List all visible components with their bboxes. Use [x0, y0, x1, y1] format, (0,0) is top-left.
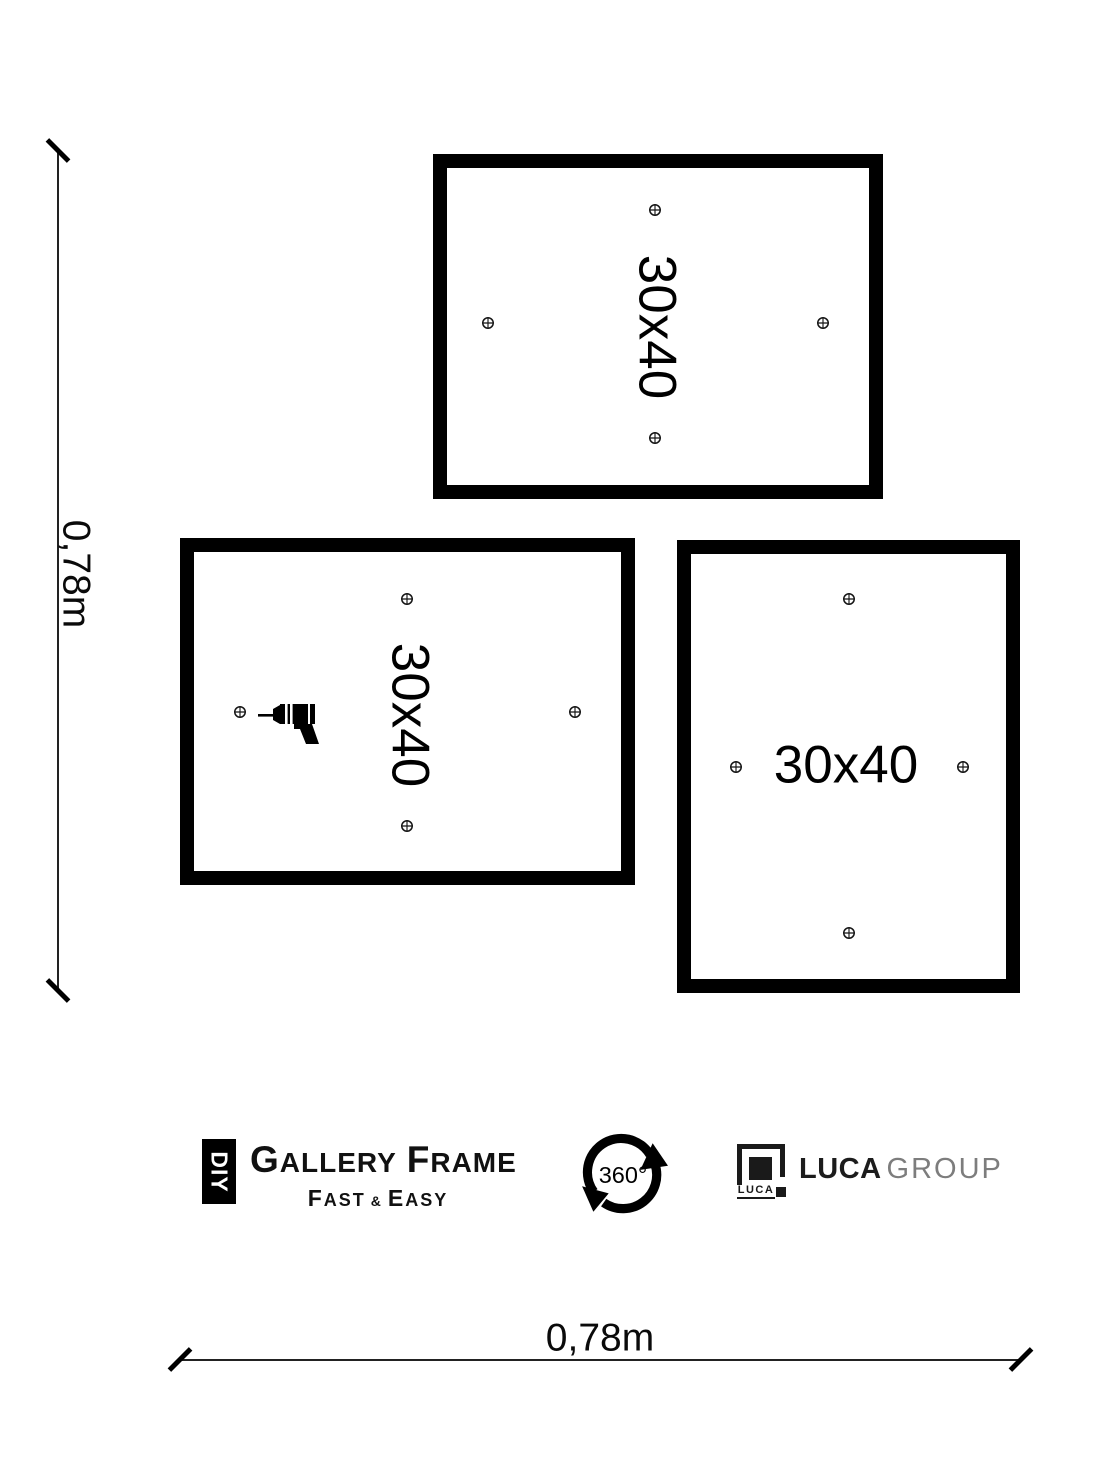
ampersand: &: [371, 1193, 383, 1209]
screw-marker-icon: [648, 203, 662, 217]
gallery-frame-logo: GALLERYFRAME FAST&EASY: [250, 1143, 506, 1212]
fast-initial: F: [308, 1185, 324, 1211]
luca-logo-icon: LUCA: [737, 1144, 787, 1199]
gallery-rest: ALLERY: [280, 1147, 397, 1178]
frame-rest: RAME: [430, 1147, 516, 1178]
screw-marker-icon: [648, 431, 662, 445]
screw-marker-icon: [400, 819, 414, 833]
luca-name: LUCA: [799, 1153, 882, 1185]
luca-group: GROUP: [887, 1153, 1003, 1185]
screw-marker-icon: [816, 316, 830, 330]
luca-icon-top-bar: [737, 1144, 785, 1149]
luca-icon-label: LUCA: [737, 1185, 775, 1199]
luca-icon-left-bar: [737, 1144, 742, 1185]
frame-initial: F: [407, 1139, 431, 1180]
luca-icon-right-bar: [780, 1144, 785, 1177]
screw-marker-icon: [842, 926, 856, 940]
luca-icon-inner-square: [749, 1157, 772, 1180]
screw-marker-icon: [729, 760, 743, 774]
frame-size-label: 30x40: [774, 739, 918, 792]
frame-30x40-bottom-right: 30x40: [677, 540, 1020, 993]
height-dimension-label: 0,78m: [57, 520, 96, 628]
screw-marker-icon: [481, 316, 495, 330]
fast-rest: AST: [324, 1190, 366, 1210]
screw-marker-icon: [400, 592, 414, 606]
frame-size-label: 30x40: [384, 643, 437, 787]
frame-30x40-top: 30x40: [433, 154, 883, 499]
screw-marker-icon: [233, 705, 247, 719]
gallery-frame-layout-diagram: 0,78m 0,78m 30x40 30x40: [0, 0, 1101, 1462]
screw-marker-icon: [568, 705, 582, 719]
fast-easy-tagline: FAST&EASY: [250, 1188, 506, 1212]
diy-badge-label: DIY: [208, 1151, 231, 1192]
easy-rest: ASY: [405, 1190, 448, 1210]
luca-icon-corner-square: [776, 1187, 786, 1197]
width-dimension-label: 0,78m: [546, 1319, 654, 1358]
screw-marker-icon: [842, 592, 856, 606]
luca-group-wordmark: LUCAGROUP: [799, 1154, 1003, 1189]
diy-badge: DIY: [202, 1139, 236, 1204]
gallery-frame-wordmark: GALLERYFRAME: [250, 1143, 506, 1185]
gallery-initial: G: [250, 1139, 280, 1180]
screw-marker-icon: [956, 760, 970, 774]
frame-size-label: 30x40: [631, 255, 684, 399]
frame-30x40-bottom-left: 30x40: [180, 538, 635, 885]
drill-icon: [258, 702, 322, 746]
rotation-360-icon: 360°: [577, 1129, 669, 1221]
rotation-360-label: 360°: [599, 1162, 648, 1188]
easy-initial: E: [388, 1185, 405, 1211]
